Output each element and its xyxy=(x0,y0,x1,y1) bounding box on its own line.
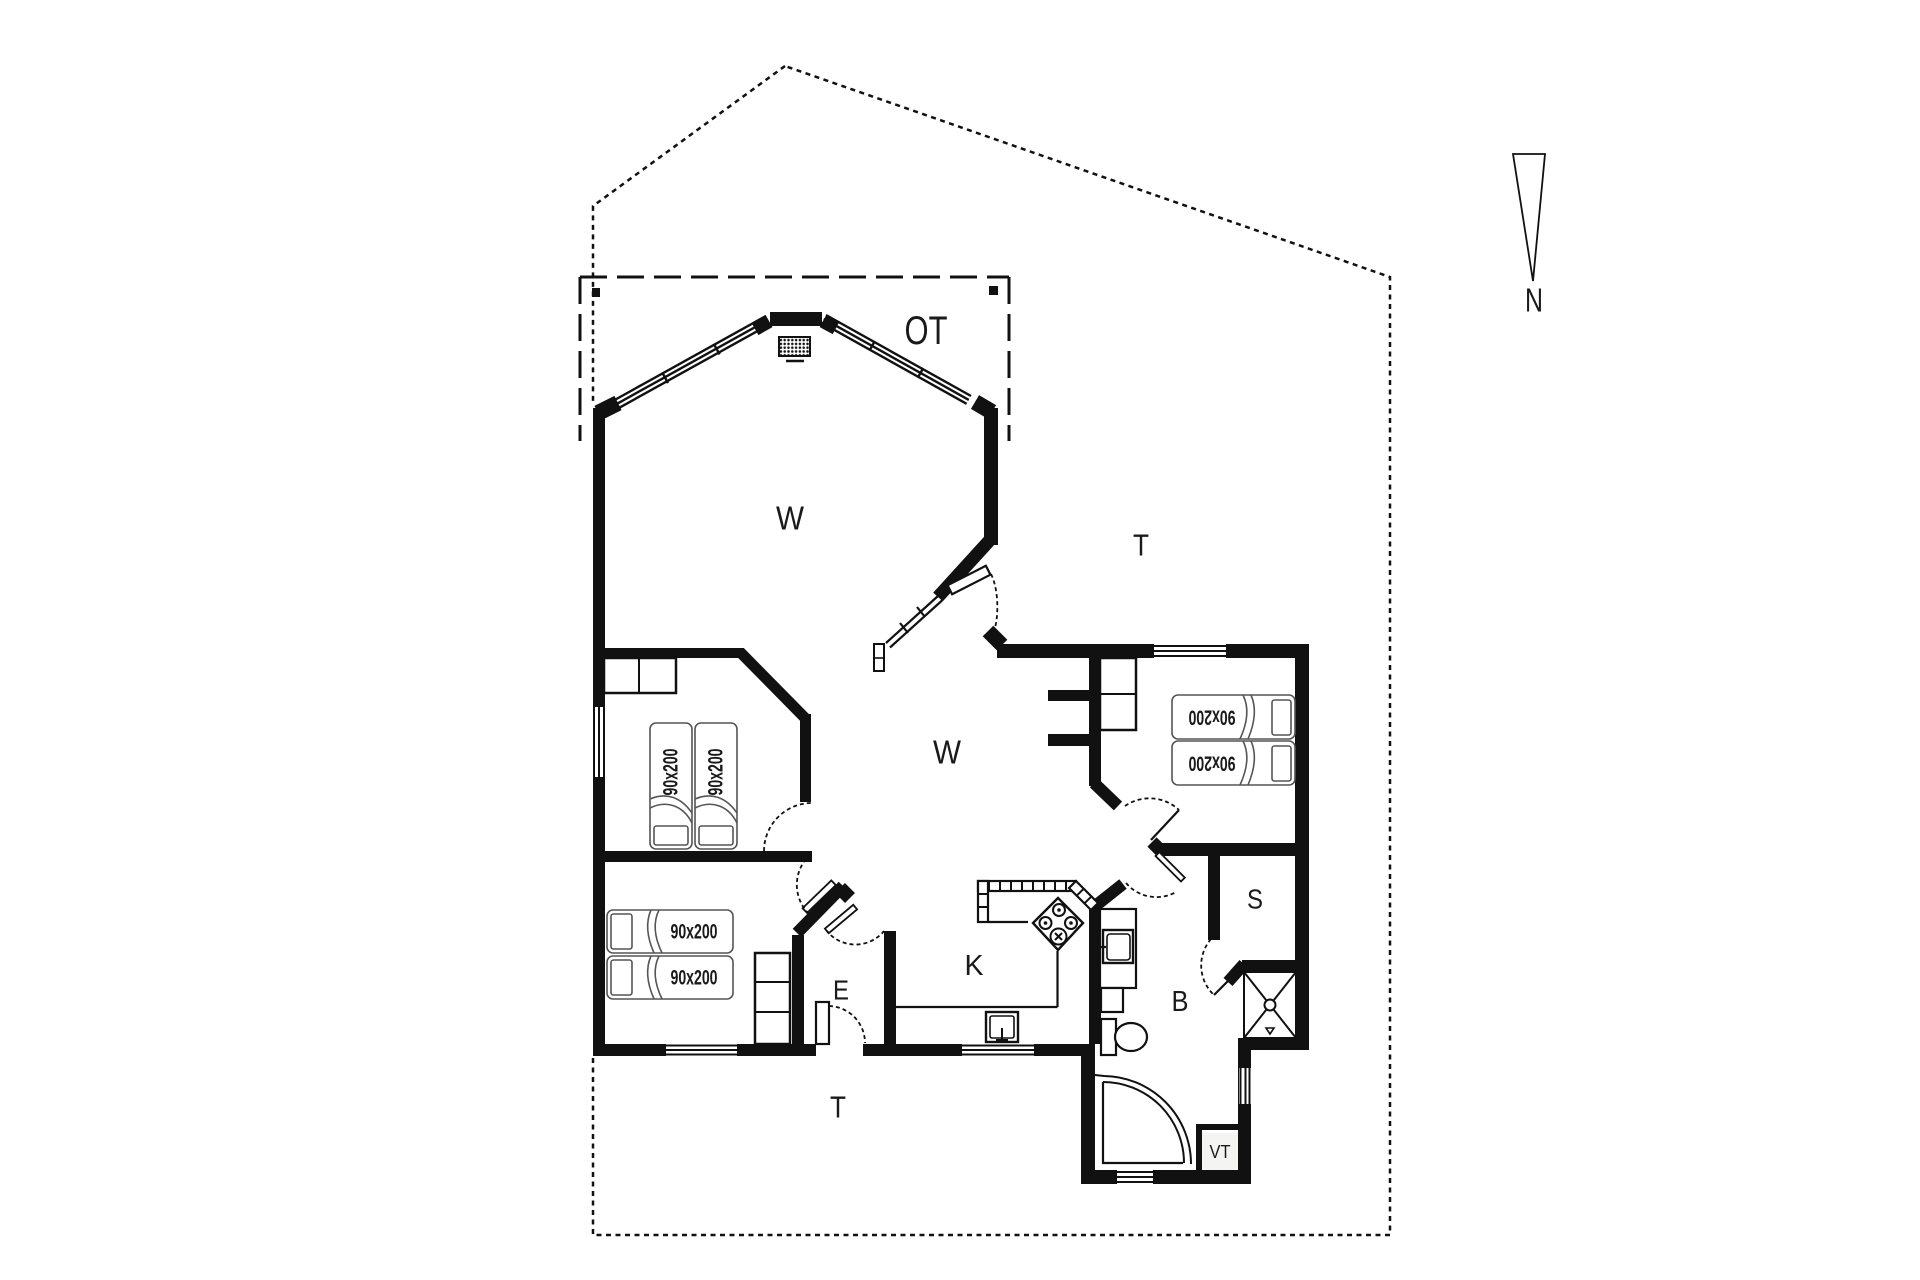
svg-text:90x200: 90x200 xyxy=(671,967,718,990)
svg-text:N: N xyxy=(1525,282,1543,319)
svg-text:W: W xyxy=(933,734,962,771)
svg-text:K: K xyxy=(965,950,985,982)
svg-text:90x200: 90x200 xyxy=(705,749,728,796)
svg-text:S: S xyxy=(1247,884,1263,915)
svg-text:B: B xyxy=(1172,986,1189,1018)
svg-text:T: T xyxy=(830,1090,846,1125)
svg-text:W: W xyxy=(776,500,805,537)
svg-text:VT: VT xyxy=(1210,1142,1231,1162)
svg-text:90x200: 90x200 xyxy=(660,749,683,796)
svg-text:T: T xyxy=(1133,528,1149,563)
svg-text:90x200: 90x200 xyxy=(1189,706,1236,729)
svg-text:90x200: 90x200 xyxy=(1189,752,1236,775)
svg-text:OT: OT xyxy=(905,309,948,353)
svg-text:90x200: 90x200 xyxy=(671,921,718,944)
svg-text:E: E xyxy=(833,975,849,1006)
